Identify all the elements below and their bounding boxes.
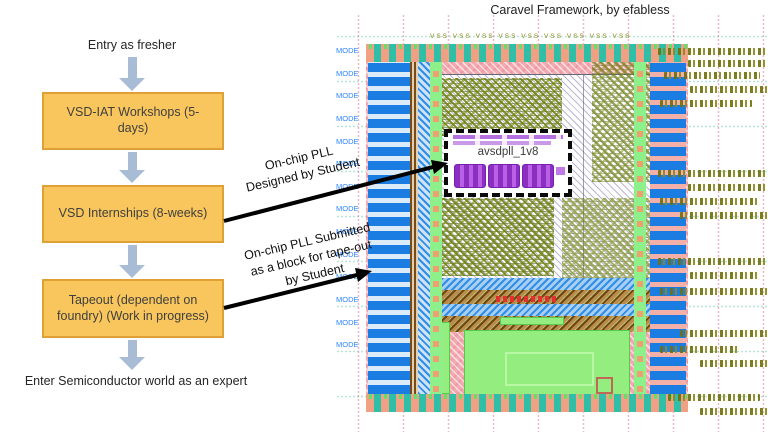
macro-inner-outline: [505, 352, 594, 386]
layout-noise: [690, 86, 768, 93]
layout-noise: [680, 330, 768, 337]
logic-mottle: [442, 198, 554, 276]
pad-label: MODE: [336, 296, 368, 304]
arrow-head: [119, 265, 145, 278]
slide: Entry as fresher VSD-IAT Workshops (5-da…: [0, 0, 768, 432]
arrow-head: [119, 357, 145, 370]
right-cell-strip: [634, 62, 646, 394]
pad-label: MODE: [336, 115, 368, 123]
layout-noise: [660, 346, 740, 353]
routing-strip: [420, 304, 656, 316]
layout-noise: [700, 408, 768, 415]
chip-layout: [366, 44, 688, 412]
pll-macro-block: [522, 164, 554, 188]
logic-mottle: [442, 78, 562, 136]
layout-noise: [658, 170, 768, 177]
arrow-shaft: [128, 152, 137, 170]
pad-label: MODE: [336, 183, 368, 191]
pad-label: MODE: [336, 47, 368, 55]
routing-strip: [420, 278, 656, 290]
left-pad-labels: MODEMODEMODEMODEMODEMODEMODEMODEMODEMODE…: [336, 47, 368, 349]
pad-label: MODE: [336, 70, 368, 78]
layout-noise: [688, 60, 768, 67]
flow-box-workshops: VSD-IAT Workshops (5-days): [42, 92, 224, 150]
layout-noise: [660, 100, 752, 107]
chip-title: Caravel Framework, by efabless: [400, 3, 760, 17]
pll-route-line: [453, 141, 551, 145]
pll-macro-block: [454, 164, 486, 188]
arrow-shaft: [128, 57, 137, 78]
right-io-pads: [650, 62, 686, 394]
layout-noise: [664, 72, 760, 79]
layout-noise: [660, 198, 760, 205]
layout-noise: [688, 184, 768, 191]
pll-route-line: [453, 135, 563, 139]
layout-noise: [668, 394, 760, 401]
pll-macro-bit: [556, 167, 565, 175]
flow-box-tapeout: Tapeout (dependent on foundry) (Work in …: [42, 279, 224, 338]
layout-noise: [658, 48, 766, 55]
left-cell-strip: [430, 62, 442, 394]
flow-arrow-down-icon: [119, 152, 145, 183]
pll-callout-box: avsdpll_1v8: [444, 129, 572, 197]
top-pad-band: [366, 44, 688, 62]
pll-block-label: avsdpll_1v8: [448, 146, 568, 158]
layout-noise: [680, 212, 768, 219]
vss-rail-label: VSS VSS VSS VSS VSS VSS VSS VSS VSS: [430, 33, 656, 42]
bottom-pad-band: [366, 394, 688, 412]
flow-arrow-down-icon: [119, 340, 145, 370]
flow-start-label: Entry as fresher: [57, 38, 207, 52]
macro-green-bar: [500, 317, 564, 325]
layout-noise: [658, 258, 768, 265]
pad-label: MODE: [336, 205, 368, 213]
flow-end-label: Enter Semiconductor world as an expert: [8, 374, 264, 388]
layout-noise: [660, 288, 768, 295]
left-metal-hatch: [418, 62, 430, 394]
arrow-shaft: [128, 245, 137, 265]
pad-label: MODE: [336, 319, 368, 327]
layout-noise: [690, 272, 760, 279]
flow-box-internships: VSD Internships (8-weeks): [42, 185, 224, 243]
flow-arrow-down-icon: [119, 245, 145, 278]
layout-noise: [700, 360, 768, 367]
arrow-head: [119, 78, 145, 91]
arrow-shaft: [128, 340, 137, 357]
pad-label: MODE: [336, 92, 368, 100]
flow-arrow-down-icon: [119, 57, 145, 91]
pad-label: MODE: [336, 341, 368, 349]
arrow-head: [119, 170, 145, 183]
macro-marker-square: [596, 377, 613, 394]
layout-text-marks: [496, 296, 558, 302]
pll-macro-block: [488, 164, 520, 188]
left-power-strip: [410, 62, 418, 394]
